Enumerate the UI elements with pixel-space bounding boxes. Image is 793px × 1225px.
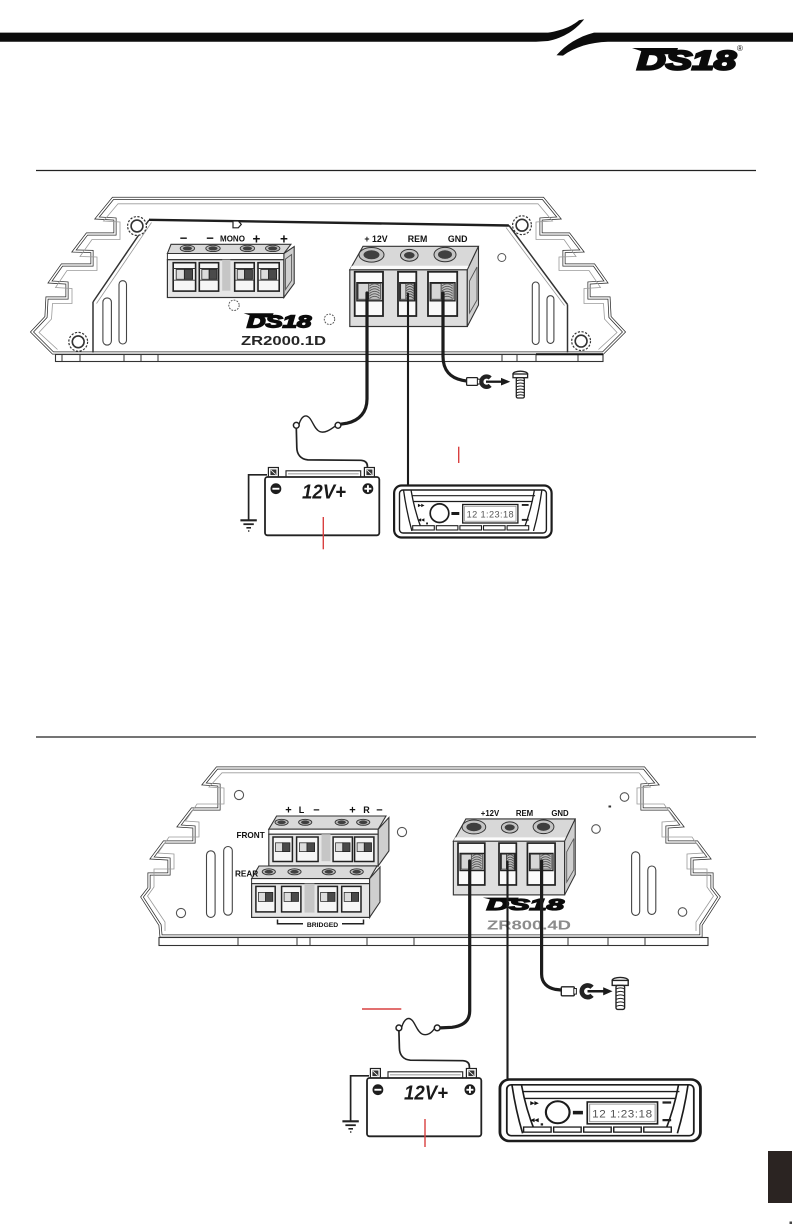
svg-text:REAR: REAR xyxy=(235,870,258,879)
svg-text:MONO: MONO xyxy=(220,235,245,244)
svg-text:−: − xyxy=(376,805,382,817)
svg-text:REM: REM xyxy=(408,234,428,244)
svg-text:BRIDGED: BRIDGED xyxy=(307,922,338,929)
svg-text:+ 12V: + 12V xyxy=(364,234,387,244)
svg-text:−: − xyxy=(313,805,319,817)
svg-text:®: ® xyxy=(737,44,743,53)
svg-text:ZR800.4D: ZR800.4D xyxy=(487,919,571,933)
svg-text:+: + xyxy=(253,232,261,247)
svg-text:GND: GND xyxy=(448,234,468,244)
svg-text:REM: REM xyxy=(516,809,533,818)
svg-text:ZR2000.1D: ZR2000.1D xyxy=(241,334,326,348)
svg-text:FRONT: FRONT xyxy=(237,831,265,840)
svg-text:−: − xyxy=(180,231,188,246)
svg-text:−: − xyxy=(206,231,214,246)
svg-text:GND: GND xyxy=(551,809,569,818)
svg-text:+: + xyxy=(349,805,355,817)
svg-text:+12V: +12V xyxy=(481,809,500,818)
svg-text:+: + xyxy=(285,805,291,817)
svg-text:+: + xyxy=(280,232,288,247)
svg-text:R: R xyxy=(363,805,370,815)
svg-text:L: L xyxy=(299,805,305,815)
